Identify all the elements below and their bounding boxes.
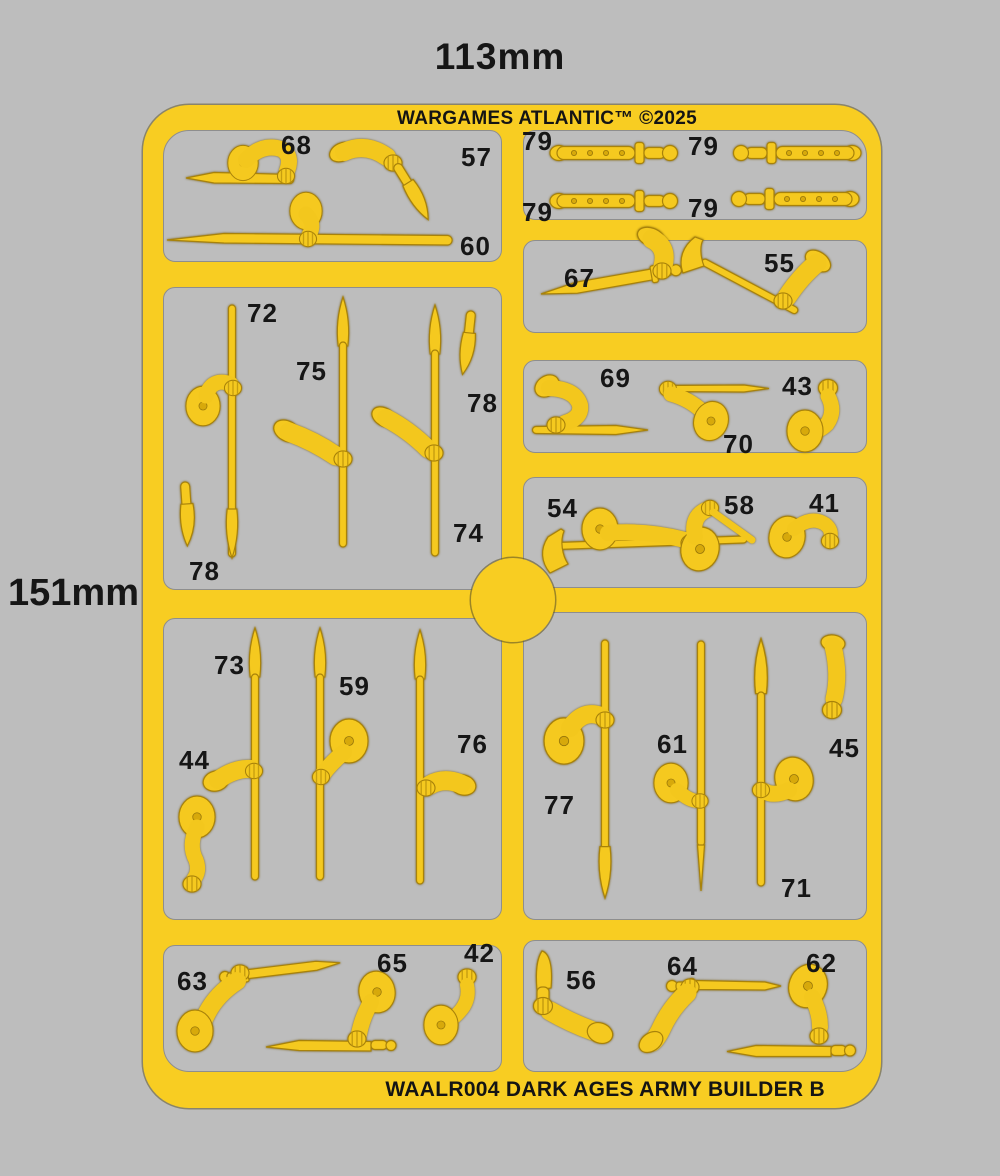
- part-label-61: 61: [657, 729, 688, 760]
- part-label-75: 75: [296, 356, 327, 387]
- part-label-69: 69: [600, 363, 631, 394]
- part-label-43: 43: [782, 371, 813, 402]
- part-label-78b: 78: [189, 556, 220, 587]
- part-label-67: 67: [564, 263, 595, 294]
- part-label-79a: 79: [522, 126, 553, 157]
- part-label-71: 71: [781, 873, 812, 904]
- sprue-cell-large-right: [523, 612, 867, 920]
- part-label-62: 62: [806, 948, 837, 979]
- part-label-45: 45: [829, 733, 860, 764]
- part-label-73: 73: [214, 650, 245, 681]
- part-label-79b: 79: [688, 131, 719, 162]
- sprue-cell-mid-left: [163, 287, 502, 590]
- part-label-59: 59: [339, 671, 370, 702]
- width-dimension-label: 113mm: [0, 36, 1000, 78]
- part-label-76: 76: [457, 729, 488, 760]
- center-hub: [471, 558, 555, 642]
- part-label-79d: 79: [688, 193, 719, 224]
- part-label-60: 60: [460, 231, 491, 262]
- part-label-63: 63: [177, 966, 208, 997]
- part-label-77: 77: [544, 790, 575, 821]
- part-label-64: 64: [667, 951, 698, 982]
- sprue-cell-bottom-left: [163, 945, 502, 1072]
- part-label-72: 72: [247, 298, 278, 329]
- part-label-42: 42: [464, 938, 495, 969]
- part-label-55: 55: [764, 248, 795, 279]
- part-label-65: 65: [377, 948, 408, 979]
- sprue-photo: 113mm 151mm WARGAMES ATLANTIC™ ©2025 WAA…: [0, 0, 1000, 1176]
- part-label-78a: 78: [467, 388, 498, 419]
- part-label-57: 57: [461, 142, 492, 173]
- part-label-58: 58: [724, 490, 755, 521]
- part-label-70: 70: [723, 429, 754, 460]
- height-dimension-label: 151mm: [8, 572, 139, 615]
- part-label-41: 41: [809, 488, 840, 519]
- brand-text: WARGAMES ATLANTIC™ ©2025: [143, 105, 881, 131]
- part-label-68: 68: [281, 130, 312, 161]
- part-label-54: 54: [547, 493, 578, 524]
- sprue-cell-top-left: [163, 130, 502, 262]
- part-label-74: 74: [453, 518, 484, 549]
- part-label-44: 44: [179, 745, 210, 776]
- product-code-text: WAALR004 DARK AGES ARMY BUILDER B: [143, 1073, 881, 1108]
- part-label-56: 56: [566, 965, 597, 996]
- part-label-79c: 79: [522, 197, 553, 228]
- sprue-cell-right-3: [523, 360, 867, 453]
